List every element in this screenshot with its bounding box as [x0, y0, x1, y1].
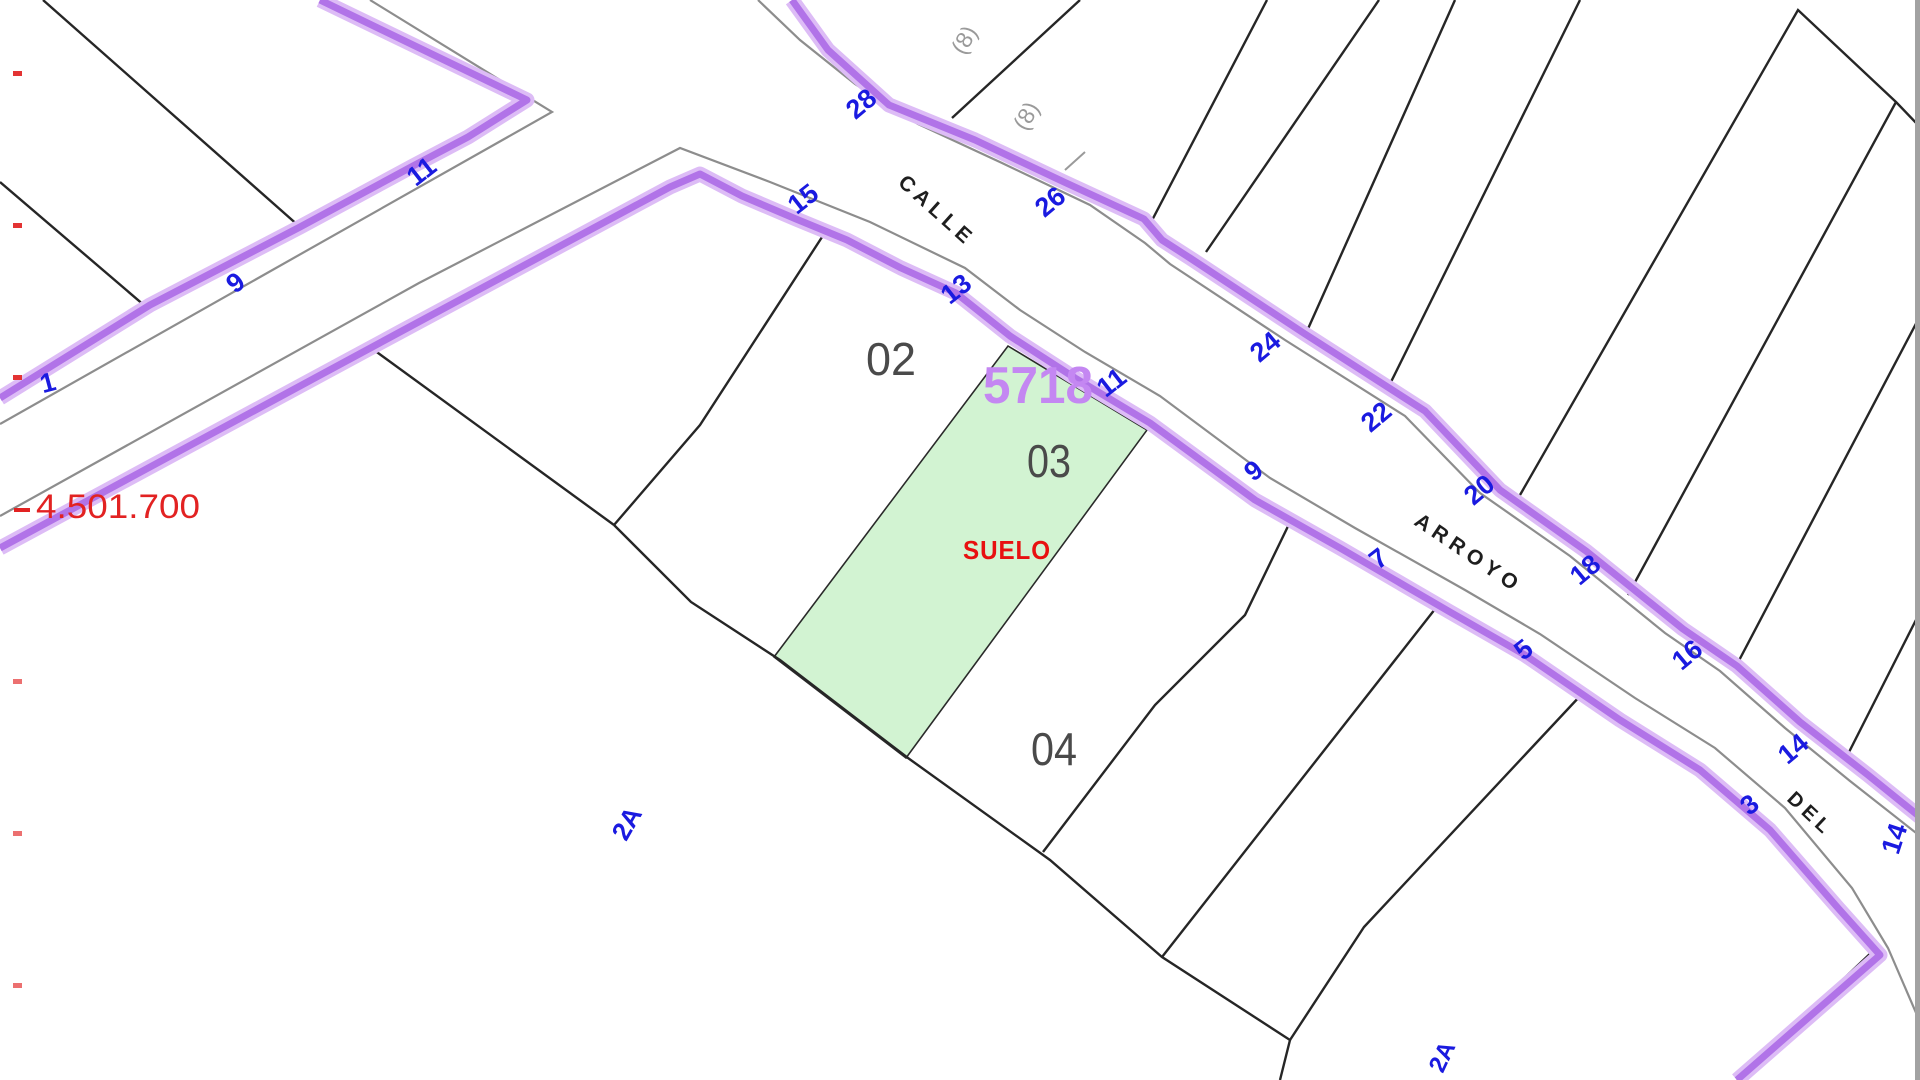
svg-text:SUELO: SUELO — [963, 535, 1051, 565]
svg-text:03: 03 — [1027, 435, 1071, 487]
svg-text:04: 04 — [1031, 723, 1077, 775]
svg-text:5718: 5718 — [983, 357, 1093, 415]
svg-text:4.501.700: 4.501.700 — [36, 488, 200, 526]
svg-text:02: 02 — [866, 333, 916, 385]
